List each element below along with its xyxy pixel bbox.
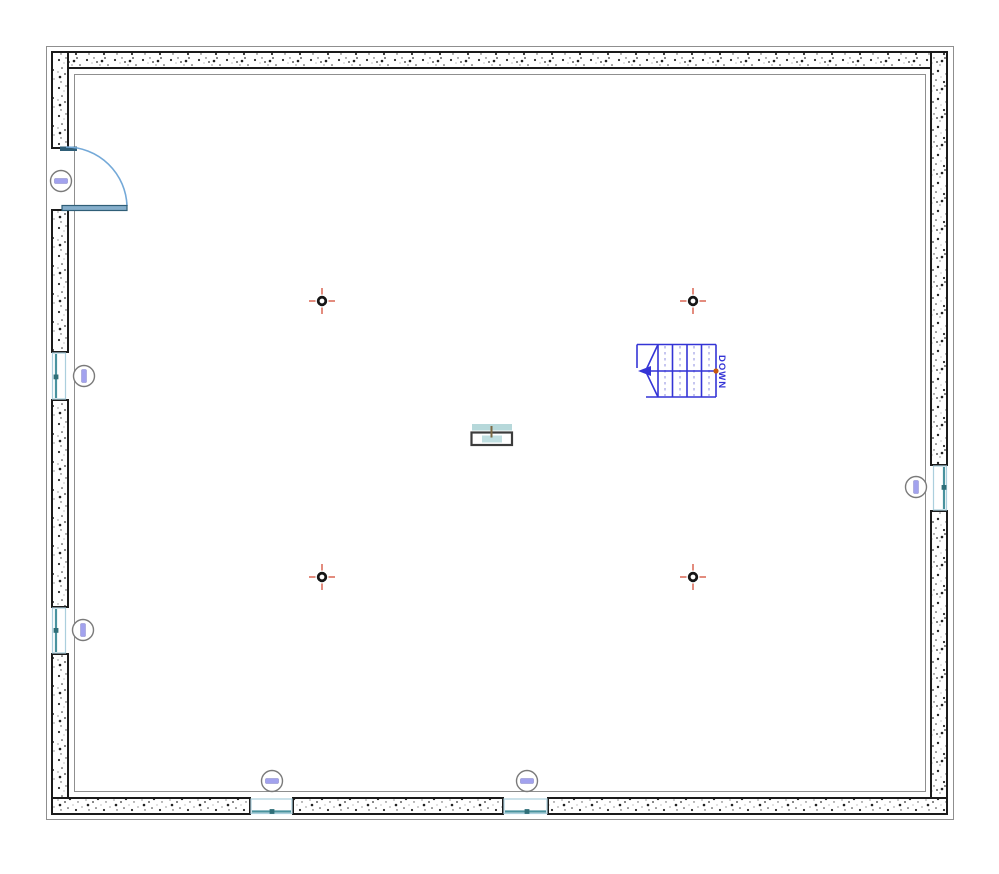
window-bottom-left[interactable] [251,799,292,814]
wall-segment-bottom-2[interactable] [293,798,503,814]
window-mullion-dot [270,809,275,814]
door-tag-icon[interactable] [51,171,72,192]
window-mullion-dot [942,485,947,490]
stair-down[interactable]: DOWN [637,345,727,398]
wall-segment-left-1[interactable] [52,52,68,148]
window-bottom-right[interactable] [504,799,547,814]
window-tag-icon[interactable] [74,366,95,387]
door-swing-arc [66,147,127,206]
wall-segment-top[interactable] [52,52,947,68]
window-mullion-dot [525,809,530,814]
wall-segment-left-2[interactable] [52,210,68,352]
stair-break-line-lower [646,372,658,397]
wall-segment-bottom-3[interactable] [548,798,947,814]
wall-segment-left-4[interactable] [52,654,68,814]
window-right[interactable] [934,466,947,510]
column-marker-icon[interactable] [309,564,335,590]
window-left-upper[interactable] [53,353,66,399]
window-tag-icon[interactable] [906,477,927,498]
window-tag-icon[interactable] [73,620,94,641]
window-mullion-dot [54,628,59,633]
door-panel[interactable] [62,206,127,211]
stair-down-label: DOWN [716,355,727,389]
wall-segment-bottom-1[interactable] [52,798,250,814]
column-marker-icon[interactable] [680,288,706,314]
drawing-canvas[interactable]: DOWN [0,0,999,874]
stair-direction-arrow-icon [638,366,651,376]
window-tag-icon[interactable] [262,771,283,792]
wall-segment-right-2[interactable] [931,511,947,814]
wall-segment-right-1[interactable] [931,52,947,465]
column-marker-icon[interactable] [309,288,335,314]
stair-break-line-upper [646,345,658,371]
wall-segment-left-3[interactable] [52,400,68,607]
window-mullion-dot [54,375,59,380]
column-marker-icon[interactable] [680,564,706,590]
window-left-lower[interactable] [53,608,66,653]
sink-fixture[interactable] [472,424,513,445]
window-tag-icon[interactable] [517,771,538,792]
